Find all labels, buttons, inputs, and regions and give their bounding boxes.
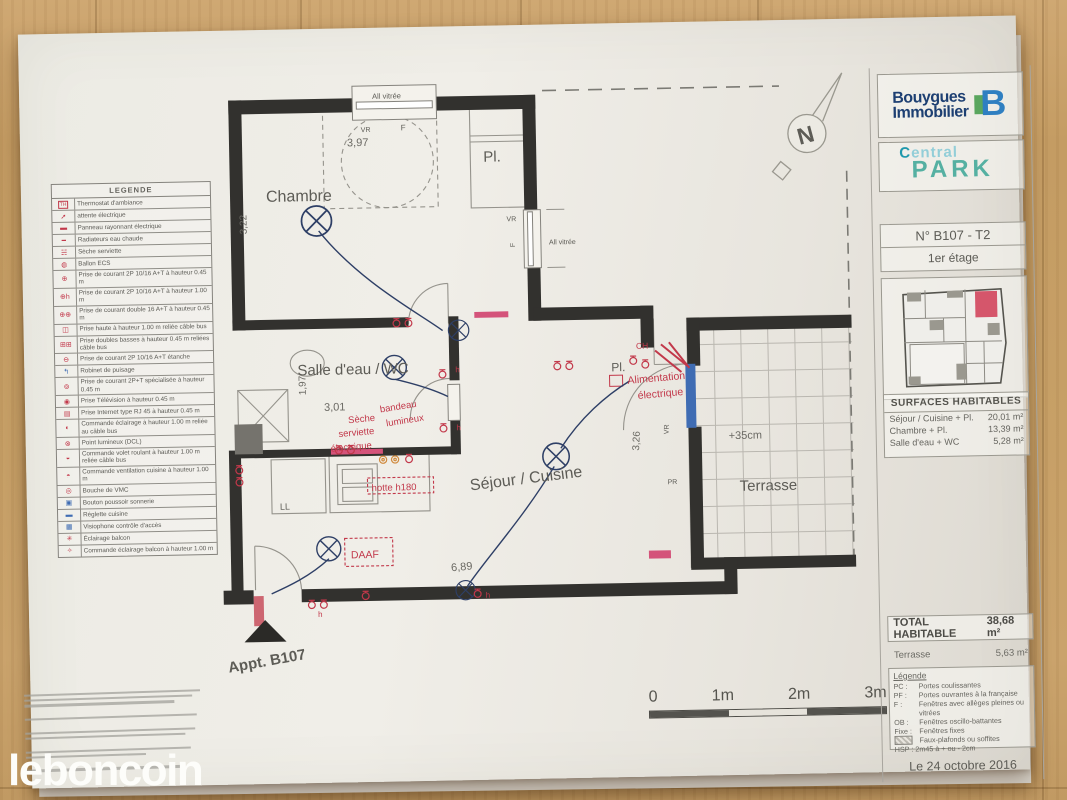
bouygues-name-2: Immobilier	[892, 104, 968, 121]
central-park-logo: Central PARK	[878, 139, 1025, 192]
alim-label-1: Alimentation	[627, 370, 686, 387]
plan-date: Le 24 octobre 2016	[883, 757, 1043, 774]
outlet-high-icon: ⊕h	[54, 288, 77, 305]
scale-2m: 2m	[788, 686, 811, 704]
terrasse-area-row: Terrasse5,63 m²	[888, 643, 1034, 664]
vr-label-top: VR	[361, 127, 371, 134]
abbrev-row: F :Fenêtres avec allèges pleines ou vitr…	[894, 697, 1030, 718]
shutter-switch-icon: ◒	[57, 450, 80, 467]
room-label-terrasse: Terrasse	[739, 477, 797, 495]
scale-bar-segments	[649, 706, 887, 719]
unit-floor: 1er étage	[881, 245, 1025, 270]
f-label-top: F	[401, 123, 406, 132]
total-habitable-row: TOTAL HABITABLE38,68 m²	[887, 613, 1033, 642]
unit-number: N° B107 - T2	[881, 222, 1025, 248]
radiator-marks	[248, 308, 672, 626]
f-label-right: F	[510, 243, 517, 247]
duct-block	[234, 424, 263, 455]
room-label-chambre: Chambre	[266, 188, 332, 206]
electrical-legend-table: LEGENDE THThermostat d'ambiance ➚attente…	[51, 181, 218, 558]
highlighted-unit	[975, 291, 997, 317]
hood-label: hotte h180	[372, 482, 417, 494]
h-mark: h	[456, 423, 461, 432]
vr-label-mid: VR	[664, 424, 671, 434]
room-label-sejour: Séjour / Cuisine	[469, 464, 583, 495]
apartment-number-label: Appt. B107	[227, 646, 307, 676]
h-mark: h	[455, 365, 460, 374]
key-map-box	[881, 275, 1029, 400]
light-switch-icon: ◐	[56, 420, 79, 437]
radiant-panel-icon: ▬	[52, 223, 75, 234]
soffit-hatch-swatch	[894, 736, 912, 745]
wood-seam	[95, 0, 97, 34]
towel-dryer-label-2: serviette	[338, 426, 375, 440]
pr-label: PR	[668, 479, 678, 486]
legend-row: ✧Commande éclairage balcon à hauteur 1.0…	[59, 543, 217, 557]
outlet-symbols	[233, 314, 653, 610]
glazed-sill-label-top: All vitrée	[372, 91, 401, 101]
dim-chambre-h: 3,22	[238, 214, 249, 234]
water-heater-label: CH	[636, 341, 648, 351]
vmc-vent-icon: ◎	[58, 485, 81, 496]
room-label-placard-top: Pl.	[483, 148, 501, 165]
light-strip-label-2: lumineux	[385, 412, 425, 429]
room-label-salle-eau: Salle d'eau / WC	[297, 360, 409, 379]
key-map	[895, 283, 1015, 393]
apartment-floor-plan: Chambre Pl. Salle d'eau / WC Séjour / Cu…	[204, 70, 878, 713]
outlet-icon: ⊕	[53, 271, 76, 288]
tv-outlet-icon: ◉	[56, 396, 79, 407]
water-radiator-icon: ━	[53, 235, 76, 246]
scale-0: 0	[649, 688, 658, 706]
leboncoin-watermark: leboncoin	[8, 746, 202, 796]
dim-sdb-h: 1,97	[297, 375, 308, 395]
rj45-outlet-icon: ▤	[56, 408, 79, 419]
h-mark: h	[486, 591, 491, 600]
floor-plan-sheet: LEGENDE THThermostat d'ambiance ➚attente…	[18, 15, 1030, 788]
double-outlet-icon: ⊕⊕	[54, 306, 77, 323]
bouygues-b-icon: B	[974, 86, 1009, 123]
wood-seam	[520, 0, 522, 28]
unit-number-box: N° B107 - T2 1er étage	[880, 221, 1027, 272]
smoke-detector-label: DAAF	[351, 549, 379, 562]
thermostat-icon: TH	[52, 199, 75, 210]
ceiling-light-icon: ⊗	[57, 438, 80, 449]
walls	[214, 89, 857, 605]
towel-dryer-icon: ☵	[53, 247, 76, 258]
dim-sdb-w: 3,01	[324, 401, 346, 413]
surface-row: Salle d'eau + WC5,28 m²	[885, 434, 1029, 449]
kitchen-strip-light-icon: ▬	[58, 509, 81, 520]
glazed-sill-label-right: All vitrée	[549, 239, 576, 247]
dim-terrasse-h: 3,26	[631, 431, 643, 451]
title-block-column: Bouygues Immobilier B Central PARK N° B1…	[869, 65, 1045, 782]
electric-wait-icon: ➚	[52, 211, 75, 222]
intercom-icon: ▦	[58, 521, 81, 532]
interior-lines	[232, 104, 691, 591]
water-tap-icon: ↰	[55, 366, 78, 377]
dim-top: 3,97	[347, 137, 369, 149]
dim-sejour-w: 6,89	[451, 560, 473, 574]
terrace-door-frame	[685, 364, 696, 428]
alim-label-2: électrique	[637, 386, 684, 402]
room-label-placard-mid: Pl.	[611, 360, 625, 374]
terrace-level-label: +35cm	[729, 429, 763, 442]
scale-bar: 0 1m 2m 3m	[649, 684, 888, 719]
towel-dryer-label-1: Sèche	[348, 413, 376, 426]
hsp-row: HSP : 2m45 à + ou - 2cm	[895, 742, 1031, 754]
doorbell-button-icon: ▣	[58, 497, 81, 508]
bouygues-logo: Bouygues Immobilier B	[877, 71, 1024, 138]
waterproof-outlet-icon: ⊖	[55, 354, 78, 365]
balcony-light-icon: ✳	[58, 533, 81, 544]
terrace-tile-grid	[686, 315, 856, 568]
scale-1m: 1m	[712, 687, 735, 705]
h-mark: h	[318, 610, 323, 619]
vent-switch-icon: ◓	[57, 467, 80, 484]
entrance-marker	[244, 620, 286, 643]
double-low-outlet-icon: ⊞⊞	[55, 336, 78, 353]
light-strip-label-1: bandeau	[379, 399, 417, 416]
surfaces-table: SURFACES HABITABLES Séjour / Cuisine + P…	[883, 391, 1030, 458]
water-heater-icon: ◍	[53, 259, 76, 270]
bus-outlet-icon: ◫	[54, 324, 77, 335]
wood-seam	[300, 0, 302, 30]
vr-label-right: VR	[506, 216, 516, 223]
dedicated-outlet-icon: ⊚	[55, 378, 78, 395]
abbreviations-legend: Légende PC :Portes coulissantes PF :Port…	[888, 665, 1036, 750]
project-name-park: PARK	[911, 154, 1018, 184]
balcony-light-switch-icon: ✧	[59, 545, 82, 556]
photo-of-floor-plan: { "watermark": {"text": "leboncoin"}, "b…	[0, 0, 1067, 800]
washer-label: LL	[280, 502, 290, 512]
